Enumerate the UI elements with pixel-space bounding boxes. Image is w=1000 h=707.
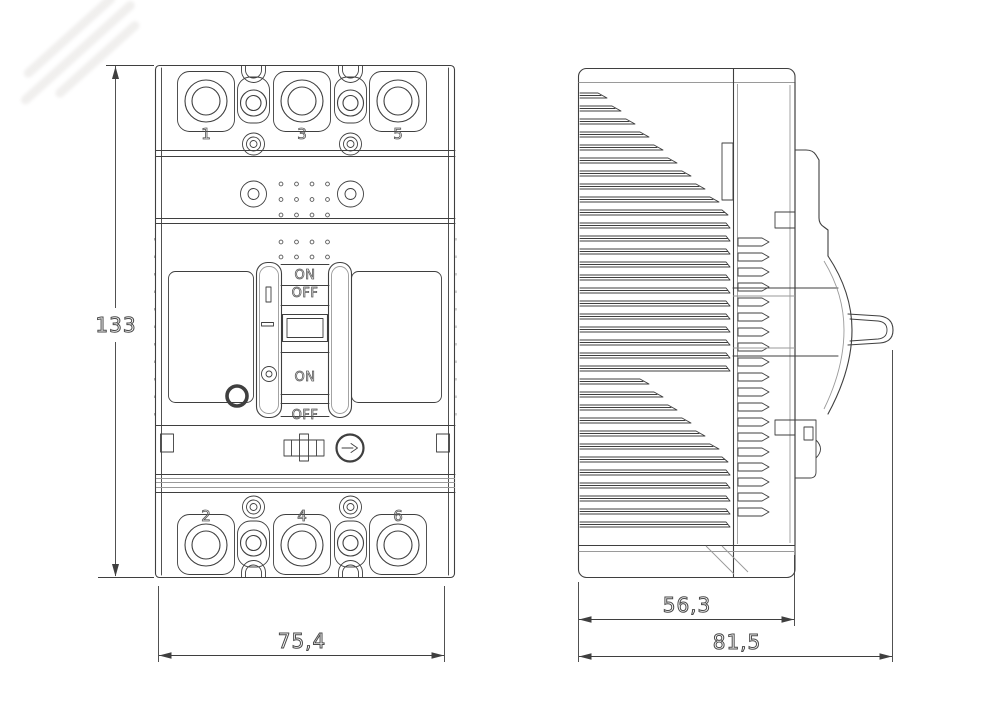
profile-step xyxy=(795,150,828,256)
cover-screws xyxy=(241,181,364,207)
label-off-lower: OFF xyxy=(292,408,319,423)
pole-number-6: 6 xyxy=(393,507,403,525)
dimension-body-depth-value: 56,3 xyxy=(663,593,712,617)
vent-dot-grid-upper xyxy=(279,182,329,217)
drawing-canvas: 1 3 5 xyxy=(0,0,1000,707)
bottom-terminal-circles xyxy=(185,524,419,566)
arrow-glyph xyxy=(342,444,358,453)
dimension-height: 133 xyxy=(95,66,154,578)
band-lines xyxy=(156,151,455,493)
accessory-band xyxy=(161,434,450,462)
right-cover-panel xyxy=(352,272,442,403)
face-tab-upper xyxy=(775,212,795,228)
label-on-lower: ON xyxy=(295,370,316,385)
dimension-width-value: 75,4 xyxy=(278,629,327,653)
ridge-band xyxy=(156,479,455,488)
toggle-frame-left xyxy=(257,263,282,418)
face-tab-lower xyxy=(775,420,795,435)
dimension-width: 75,4 xyxy=(159,586,445,662)
pole-number-1: 1 xyxy=(201,125,211,143)
side-view xyxy=(579,69,894,578)
label-on-upper: ON xyxy=(295,268,316,283)
off-position-mark xyxy=(262,323,274,327)
pole-number-2: 2 xyxy=(201,507,211,525)
clamp-bracket xyxy=(795,420,821,478)
toggle-dome xyxy=(828,256,852,414)
front-side-strips xyxy=(162,68,449,575)
label-off-upper: OFF xyxy=(292,286,319,301)
test-button[interactable] xyxy=(227,386,247,406)
pole-number-3: 3 xyxy=(297,125,307,143)
vent-slats-middle xyxy=(580,223,730,371)
vent-slats-front-column xyxy=(738,238,769,516)
top-terminal-circles xyxy=(185,80,419,122)
toggle-handle-inner xyxy=(287,319,323,338)
vent-slats-upper xyxy=(580,93,728,215)
dimension-body-depth: 56,3 xyxy=(579,555,795,662)
vent-slats-lower-stair xyxy=(580,379,728,462)
pole-number-4: 4 xyxy=(297,507,307,525)
dimension-height-value: 133 xyxy=(95,313,136,337)
slider-latch[interactable] xyxy=(284,440,324,456)
edge-scallops xyxy=(155,238,457,424)
pole-number-5: 5 xyxy=(393,125,403,143)
breaker-technical-drawing: 1 3 5 xyxy=(0,0,1000,707)
on-position-mark xyxy=(266,287,271,302)
trip-screw xyxy=(262,367,277,382)
left-clip xyxy=(161,434,174,452)
face-window xyxy=(722,143,733,200)
vent-slats-bottom xyxy=(580,470,730,527)
front-view: 1 3 5 xyxy=(155,66,457,578)
vent-dot-grid-middle xyxy=(279,240,329,259)
right-clip xyxy=(437,434,450,452)
left-cover-panel xyxy=(169,272,254,403)
toggle-mechanism: ON OFF ON OFF xyxy=(169,263,442,424)
dimension-overall-depth-value: 81,5 xyxy=(713,630,762,654)
